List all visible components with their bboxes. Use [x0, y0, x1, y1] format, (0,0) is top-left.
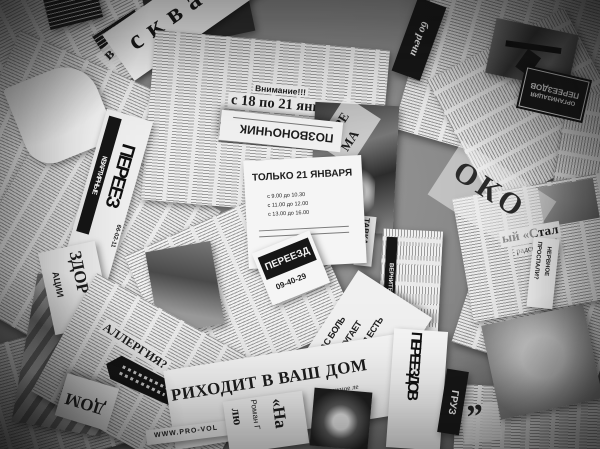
gruz-text: ГРУЗ [446, 389, 461, 415]
schedule-line: с 13.00 до 16.00 [268, 210, 309, 218]
lyu-text: лю [228, 407, 246, 426]
photo-dark-box [310, 388, 373, 449]
schedule-line: с 11.00 до 12.00 [267, 201, 308, 209]
rechi-text: бо речи [407, 20, 430, 58]
schedule-line: с 9.00 до 10.30 [267, 192, 305, 200]
letter-v-text: в [100, 45, 119, 64]
scrap-quote-mark: ” [460, 402, 503, 445]
pereezdov-text: ПЕРЕЕЗДОВ [403, 331, 425, 398]
roman-text: Роман Г [249, 399, 262, 430]
pereezd-text: ПЕРЕЕЗД [263, 245, 311, 273]
photo-face [481, 304, 600, 420]
tolko-text: ТОЛЬКО 21 ЯНВАРЯ [252, 167, 353, 183]
na-quote-text: «На [267, 397, 291, 430]
prospali-text: ПРОСПАЛИ? [532, 241, 542, 280]
acii-text: АЦИИ [50, 271, 65, 299]
quote-mark-text: ” [465, 398, 487, 438]
scrap-roman-na: лю Роман Г «На [223, 391, 310, 449]
print-line [259, 226, 349, 232]
nervnoe-text: НЕРВНОЕ [543, 246, 552, 276]
dom-text: ДОМ [62, 388, 107, 419]
org-label-text: ОРГАНИЗАЦИЯ ПЕРЕЕЗДОВ [528, 81, 580, 107]
newspaper-collage-photo: сква в Внимание!!! с 18 по 21 января ПЕР… [0, 0, 600, 449]
